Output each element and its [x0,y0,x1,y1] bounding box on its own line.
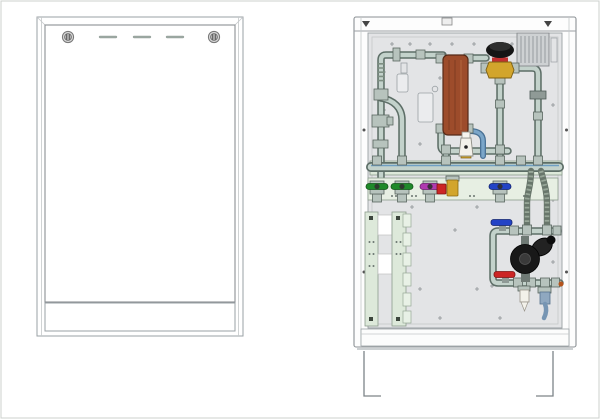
stand-leg-left [364,351,381,396]
cabinet-base-panel [45,303,235,331]
end-plug [559,282,564,287]
door-screw-right [208,31,219,42]
mounting-rail-left [365,212,378,326]
top-center-tab [442,18,452,25]
ribbed-cover [517,33,557,66]
stand-frame [357,349,573,396]
valve-red-ring [492,58,508,62]
technical-drawing-canvas [0,0,600,419]
bevel-top-right [235,17,243,25]
cabinet-drawing [0,0,600,419]
bevel-top-left [37,17,45,25]
brass-union [446,176,459,196]
open-cabinet-view [354,17,576,396]
red-cap-fitting [437,184,446,194]
closed-cabinet-view [37,17,243,336]
pipe-clamp [530,91,546,99]
cabinet-bottom [361,328,569,346]
cabinet-door [45,25,235,302]
door-screw-left [62,31,73,42]
stand-leg-right [536,351,553,396]
